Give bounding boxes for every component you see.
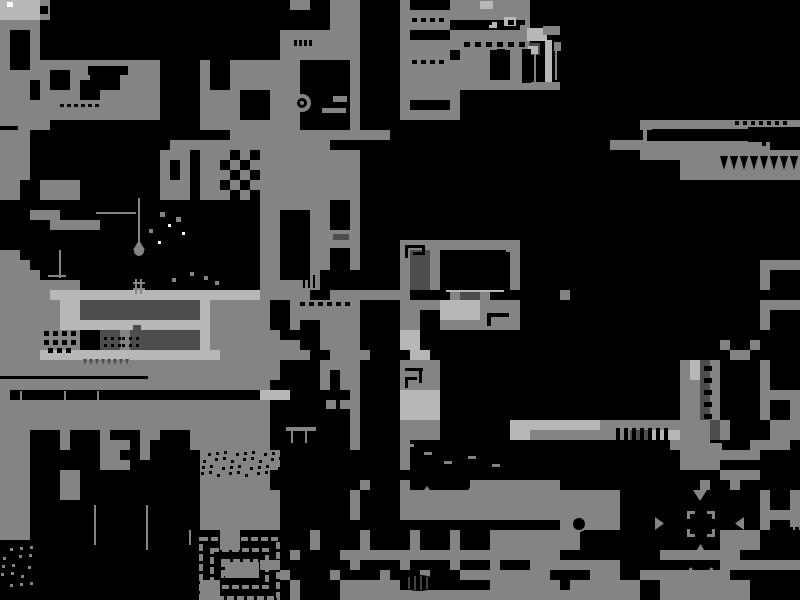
droplet	[134, 246, 144, 256]
floor-slots	[421, 18, 426, 22]
terrain-cell	[760, 520, 770, 530]
map-canvas[interactable]	[0, 0, 800, 600]
terrain-cell	[330, 350, 370, 360]
terrain-cell	[0, 10, 40, 20]
terrain-cell	[720, 530, 760, 540]
debris	[11, 572, 14, 575]
terrain-cell	[760, 260, 800, 270]
grate	[313, 275, 315, 288]
terrain-cell	[230, 180, 240, 190]
terrain-cell	[350, 250, 360, 260]
terrain-cell	[760, 490, 770, 500]
terrain-cell	[680, 170, 800, 180]
terrain-cell	[100, 90, 160, 100]
floor-slots	[430, 60, 435, 64]
room-block	[506, 245, 514, 252]
rubble	[210, 465, 213, 468]
terrain-cell	[0, 280, 80, 290]
terrain-cell	[200, 520, 280, 530]
terrain-cell	[680, 410, 700, 420]
terrain-cell	[200, 120, 300, 130]
terrain-cell	[710, 430, 720, 440]
terrain-cell	[250, 160, 360, 170]
window-grid	[71, 331, 76, 336]
terrain-cell	[560, 520, 620, 530]
terrain-cell	[270, 110, 300, 120]
rubble	[243, 458, 246, 461]
terrain-cell	[510, 260, 520, 270]
terrain-cell	[400, 0, 410, 10]
terrain-cell	[200, 60, 210, 70]
terrain-cell	[410, 530, 420, 540]
terrain-cell	[0, 310, 60, 320]
debris	[21, 575, 24, 578]
rubble	[202, 466, 205, 469]
terrain-cell	[200, 340, 210, 350]
terrain-cell	[100, 430, 110, 440]
terrain-cell	[0, 380, 270, 390]
shaft-rung	[704, 402, 712, 407]
ground-line	[0, 376, 148, 379]
terrain-cell	[350, 110, 360, 120]
terrain-cell	[70, 80, 80, 90]
terrain-cell	[230, 130, 390, 140]
vent-grid	[111, 344, 114, 347]
terrain-cell	[470, 480, 560, 490]
rubble	[245, 474, 248, 477]
rubble	[257, 472, 260, 475]
terrain-cell	[400, 90, 460, 100]
terrain-cell	[720, 420, 730, 430]
floor-slots	[430, 18, 435, 22]
terrain-cell	[680, 370, 690, 380]
terrain-cell	[0, 530, 30, 540]
terrain-cell	[490, 540, 580, 550]
terrain-cell	[400, 340, 420, 350]
debris	[3, 557, 6, 560]
terrain-cell	[790, 400, 800, 410]
step	[563, 479, 573, 485]
terrain-cell	[360, 530, 370, 540]
floor-slots	[412, 18, 417, 22]
terrain-cell	[210, 310, 270, 320]
terrain-cell	[480, 300, 520, 310]
terrain-cell	[440, 320, 520, 330]
terrain-cell	[660, 590, 750, 600]
terrain-cell	[260, 230, 280, 240]
ledge	[322, 108, 346, 113]
terrain-cell	[350, 490, 360, 500]
terrain-cell	[30, 50, 40, 60]
terrain-cell	[770, 430, 800, 440]
rubble	[251, 457, 254, 460]
floor-slots	[475, 42, 481, 47]
corridor-hatch	[624, 428, 628, 442]
room-line	[446, 290, 504, 292]
toothed-edge	[345, 302, 350, 306]
terrain-cell	[400, 400, 440, 410]
tick	[404, 444, 414, 447]
hatch-row	[95, 104, 99, 107]
toothed-edge	[300, 302, 305, 306]
terrain-cell	[60, 300, 80, 310]
terrain-cell	[340, 380, 360, 390]
light-patch	[480, 1, 493, 9]
terrain-cell	[100, 440, 130, 450]
terrain-cell	[240, 170, 250, 180]
terrain-cell	[100, 340, 120, 350]
terrain-cell	[60, 430, 70, 440]
terrain-cell	[130, 330, 200, 340]
terrain-cell	[760, 390, 800, 400]
window-grid	[62, 340, 67, 345]
rubble	[230, 466, 233, 469]
floor-slots	[412, 60, 417, 64]
terrain-cell	[760, 310, 770, 320]
window-grid	[71, 340, 76, 345]
terrain-cell	[400, 50, 450, 60]
floor-slots	[464, 20, 470, 25]
rubble	[78, 500, 80, 502]
terrain-cell	[200, 310, 210, 320]
speck	[172, 278, 176, 282]
terrain-cell	[680, 380, 700, 390]
terrain-cell	[180, 160, 190, 170]
step	[487, 317, 491, 326]
tick	[468, 456, 476, 459]
window-grid	[53, 331, 58, 336]
terrain-cell	[350, 560, 360, 570]
terrain-cell	[450, 530, 460, 540]
terrain-cell	[260, 390, 290, 400]
terrain-cell	[790, 410, 800, 420]
rubble	[201, 472, 204, 475]
step	[588, 478, 596, 483]
rubble	[64, 502, 66, 504]
floor-slots	[519, 20, 525, 25]
terrain-cell	[350, 500, 360, 510]
terrain-cell	[450, 540, 460, 550]
terrain-cell	[400, 310, 420, 320]
speck	[190, 272, 194, 276]
terrain-cell	[200, 70, 210, 80]
terrain-cell	[410, 540, 420, 550]
terrain-cell	[350, 90, 360, 100]
terrain-cell	[0, 40, 10, 50]
piston	[333, 234, 349, 240]
terrain-cell	[680, 430, 710, 440]
rubble	[60, 508, 62, 510]
terrain-cell	[60, 470, 80, 480]
terrain-cell	[0, 400, 270, 410]
terrain-cell	[320, 340, 360, 350]
terrain-cell	[400, 320, 420, 330]
hash-glyph	[133, 288, 145, 290]
terrain-cell	[30, 210, 60, 220]
vent-grid	[104, 337, 107, 340]
cave-lens	[652, 129, 748, 141]
hash-glyph	[140, 279, 142, 294]
terrain-cell	[200, 150, 230, 160]
terrain-cell	[530, 430, 630, 440]
terrain-cell	[210, 330, 280, 340]
terrain-cell	[0, 180, 20, 190]
terrain-cell	[160, 180, 190, 190]
terrain-cell	[430, 280, 440, 290]
corridor-hatch	[664, 428, 668, 442]
compass-brackets	[687, 511, 690, 519]
terrain-cell	[330, 20, 360, 30]
hatch-row	[789, 527, 793, 532]
window-grid	[53, 340, 58, 345]
terrain-cell	[290, 0, 310, 10]
floor-slots	[497, 42, 503, 47]
terrain-cell	[350, 430, 360, 440]
terrain-cell	[160, 190, 190, 200]
terrain-cell	[690, 360, 700, 370]
maze-key	[419, 371, 422, 383]
hatch-row	[783, 527, 787, 532]
terrain-cell	[0, 510, 30, 520]
tick	[444, 461, 452, 464]
terrain-cell	[400, 280, 410, 290]
terrain-cell	[360, 480, 370, 490]
floor-slots	[439, 18, 444, 22]
terrain-cell	[510, 280, 520, 290]
terrain-cell	[510, 420, 600, 430]
terrain-cell	[0, 450, 30, 460]
terrain-cell	[240, 190, 250, 200]
terrain-cell	[200, 110, 240, 120]
terrain-cell	[720, 430, 730, 440]
terrain-cell	[560, 290, 570, 300]
debris	[10, 548, 13, 551]
terrain-cell	[200, 500, 280, 510]
hatch-row	[777, 527, 781, 532]
floor-slots	[486, 42, 492, 47]
rubble	[208, 453, 211, 456]
terrain-cell	[160, 170, 170, 180]
terrain-cell	[690, 370, 700, 380]
terrain-cell	[490, 530, 580, 540]
terrain-cell	[310, 540, 320, 550]
terrain-cell	[290, 580, 300, 590]
terrain-cell	[0, 60, 10, 70]
terrain-cell	[60, 480, 80, 490]
vent-grid	[104, 344, 107, 347]
hatch-row	[74, 104, 78, 107]
terrain-cell	[0, 480, 30, 490]
toothed-edge	[318, 302, 323, 306]
terrain-cell	[350, 390, 360, 400]
hatch-row	[294, 40, 297, 46]
debris	[1, 573, 4, 576]
terrain-cell	[220, 350, 310, 360]
rubble	[231, 460, 234, 463]
terrain-cell	[180, 170, 190, 180]
speck	[149, 229, 153, 233]
terrain-cell	[200, 300, 210, 310]
hatch-row	[759, 121, 763, 125]
rubble	[266, 465, 269, 468]
terrain-cell	[0, 470, 30, 480]
terrain-cell	[0, 390, 10, 400]
vent-grid	[136, 337, 139, 340]
maze-key	[405, 248, 408, 258]
compass-brackets	[687, 529, 690, 537]
terrain-cell	[260, 280, 320, 290]
floor-slots	[508, 42, 514, 47]
terrain-cell	[170, 140, 330, 150]
terrain-cell	[260, 240, 280, 250]
terrain-cell	[730, 350, 750, 360]
terrain-cell	[760, 300, 800, 310]
window-grid	[57, 348, 62, 353]
terrain-cell	[210, 340, 300, 350]
terrain-cell	[290, 590, 300, 600]
terrain-cell	[50, 290, 260, 300]
lift-shaft	[545, 40, 552, 85]
terrain-cell	[570, 580, 640, 590]
terrain-cell	[700, 480, 710, 490]
terrain-cell	[510, 430, 530, 440]
terrain-cell	[30, 40, 40, 50]
terrain-cell	[0, 20, 40, 30]
terrain-cell	[750, 440, 790, 450]
terrain-cell	[710, 420, 720, 430]
terrain-cell	[350, 70, 360, 80]
speck	[182, 232, 185, 235]
maze-key	[405, 380, 408, 388]
terrain-cell	[0, 110, 160, 120]
debris	[2, 565, 5, 568]
terrain-cell	[400, 80, 530, 90]
terrain-cell	[160, 160, 170, 170]
hatch-row	[783, 121, 787, 125]
terrain-cell	[680, 360, 690, 370]
vent-grid	[122, 337, 125, 340]
grate	[308, 275, 310, 288]
rubble	[252, 451, 255, 454]
spiral-maze	[225, 562, 259, 578]
terrain-cell	[0, 490, 30, 500]
terrain-cell	[720, 340, 730, 350]
terrain-cell	[610, 140, 770, 150]
terrain-cell	[760, 360, 770, 370]
terrain-cell	[400, 300, 440, 310]
shaft-rung	[704, 414, 712, 419]
terrain-cell	[350, 510, 360, 520]
terrain-cell	[680, 400, 700, 410]
terrain-cell	[360, 540, 370, 550]
lift-base	[523, 82, 560, 90]
terrain-cell	[200, 490, 280, 500]
terrain-cell	[0, 150, 30, 160]
terrain-cell	[640, 570, 730, 580]
window-grid	[44, 340, 49, 345]
terrain-cell	[410, 270, 430, 280]
debris	[10, 584, 13, 587]
floor-slots	[464, 42, 470, 47]
terrain-cell	[330, 10, 360, 20]
terrain-cell	[340, 590, 640, 600]
post	[340, 400, 350, 409]
terrain-cell	[400, 390, 440, 400]
hatch-row	[81, 104, 85, 107]
speck	[168, 224, 171, 227]
rubble	[71, 501, 73, 503]
terrain-cell	[330, 290, 410, 300]
mast	[133, 325, 141, 331]
terrain-cell	[260, 150, 360, 160]
terrain-cell	[60, 490, 80, 500]
terrain-cell	[190, 440, 270, 450]
terrain-cell	[510, 270, 520, 280]
hatch-row	[795, 527, 799, 532]
terrain-cell	[350, 120, 360, 130]
terrain-cell	[450, 100, 460, 110]
terrain-cell	[350, 220, 360, 230]
terrain-cell	[430, 250, 440, 260]
maze-key	[422, 245, 425, 255]
lift-structure	[554, 42, 561, 51]
terrain-cell	[40, 90, 80, 100]
terrain-cell	[430, 270, 440, 280]
terrain-cell	[0, 250, 20, 260]
tick	[492, 464, 500, 467]
speck	[160, 212, 165, 217]
terrain-cell	[260, 290, 310, 300]
terrain-cell	[350, 60, 360, 70]
terrain-cell	[260, 270, 280, 280]
shaft-rung	[704, 378, 712, 383]
terrain-cell	[410, 260, 430, 270]
terrain-cell	[760, 270, 770, 280]
terrain-cell	[720, 540, 760, 550]
terrain-cell	[430, 260, 440, 270]
terrain-cell	[0, 520, 30, 530]
notch	[40, 6, 48, 14]
terrain-cell	[290, 320, 300, 330]
terrain-cell	[140, 450, 150, 460]
rubble	[244, 452, 247, 455]
terrain-cell	[260, 250, 280, 260]
terrain-cell	[400, 260, 410, 270]
terrain-cell	[200, 510, 280, 520]
terrain-cell	[60, 440, 70, 450]
terrain-cell	[310, 530, 320, 540]
terrain-cell	[0, 410, 270, 420]
terrain-cell	[760, 280, 770, 290]
step	[487, 313, 509, 317]
terrain-cell	[200, 330, 210, 340]
compass-brackets	[712, 511, 715, 519]
feather-cave	[401, 575, 437, 591]
terrain-cell	[350, 260, 360, 270]
hatch-row	[751, 121, 755, 125]
hatch-row	[743, 121, 747, 125]
debris	[12, 564, 15, 567]
terrain-cell	[0, 270, 40, 280]
terrain-cell	[310, 260, 330, 270]
rubble	[223, 457, 226, 460]
terrain-cell	[70, 70, 90, 80]
terrain-cell	[80, 310, 200, 320]
terrain-cell	[140, 430, 160, 440]
floor-slots	[486, 20, 492, 25]
game-map-screen[interactable]	[0, 0, 800, 600]
terrain-cell	[0, 130, 30, 140]
